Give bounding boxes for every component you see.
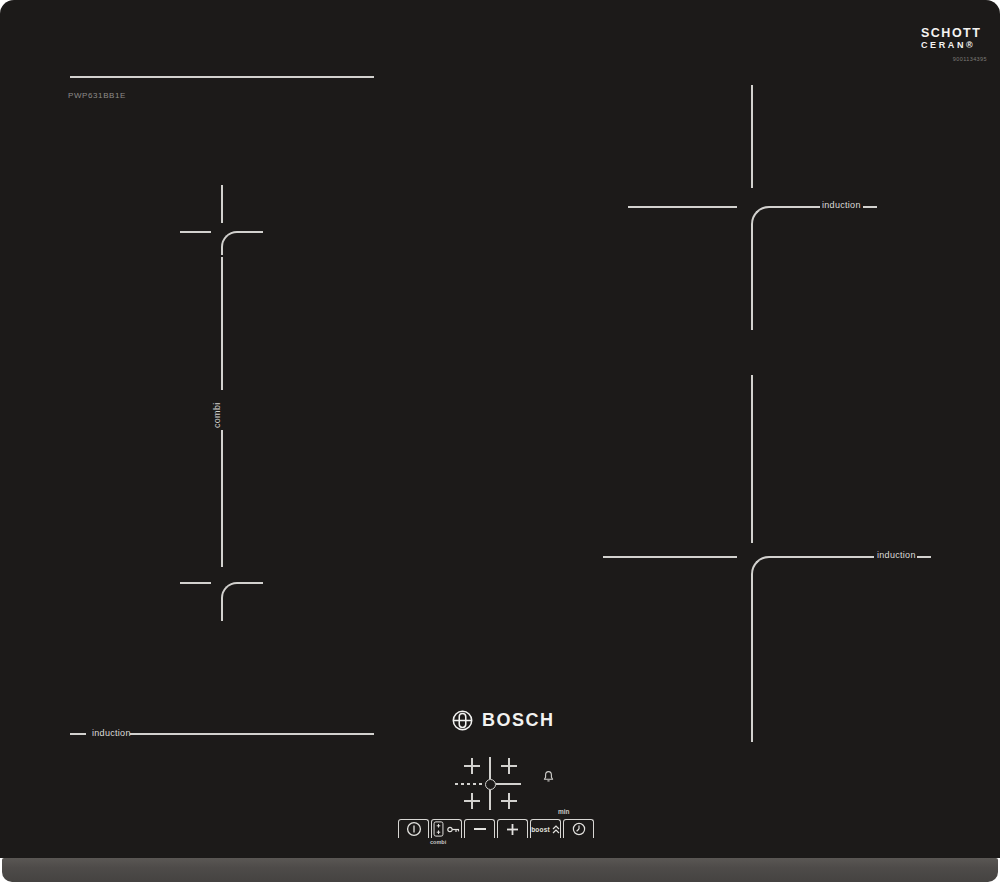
marking-line <box>221 606 223 621</box>
marking-line <box>180 582 211 584</box>
marking-line <box>489 757 491 779</box>
zone-corner-marking <box>751 556 874 586</box>
timer-clock-icon <box>572 822 586 836</box>
marking-line <box>603 556 737 558</box>
zone-corner-marking <box>221 582 263 606</box>
model-number: PWP631BB1E <box>68 91 126 100</box>
zone-corner-marking <box>221 231 263 255</box>
plus-button <box>497 819 528 838</box>
combi-and-childlock-button <box>431 819 462 838</box>
front-trim-strip <box>2 858 998 882</box>
combi-link-dashed-line <box>455 783 484 785</box>
induction-label-top-right: induction <box>822 200 861 210</box>
marking-line <box>180 231 211 233</box>
induction-label-left: induction <box>92 728 131 738</box>
ceran-text: CERAN® <box>921 41 987 50</box>
selector-ring-icon <box>485 779 496 790</box>
marking-line <box>496 783 521 785</box>
marking-line <box>221 430 223 567</box>
marking-line <box>751 375 753 543</box>
minus-button <box>464 819 495 838</box>
touch-control-row: boost <box>398 819 594 838</box>
marking-line <box>508 793 510 809</box>
combi-zone-label: combi <box>212 392 222 428</box>
schott-text: SCHOTT <box>921 27 987 40</box>
minutes-label: min <box>558 808 570 815</box>
bell-icon <box>542 770 555 783</box>
key-lock-icon <box>447 825 460 834</box>
power-icon <box>406 821 422 837</box>
marking-line <box>489 790 491 810</box>
flex-zone-icon <box>433 821 444 837</box>
minus-icon <box>474 828 486 830</box>
marking-line <box>471 793 473 809</box>
boost-chevrons-icon <box>552 825 560 834</box>
combi-button-label: combi <box>430 839 446 845</box>
marking-line <box>751 85 753 188</box>
boost-button: boost <box>530 819 561 838</box>
marking-line <box>863 206 877 208</box>
induction-label-bottom-right: induction <box>877 550 916 560</box>
bosch-logo: BOSCH <box>451 709 555 732</box>
marking-line <box>70 733 86 735</box>
marking-line <box>471 758 473 774</box>
product-photo-induction-hob: SCHOTT CERAN® 9001134395 PWP631BB1E comb… <box>0 0 1000 887</box>
boost-label: boost <box>531 826 550 833</box>
marking-line <box>221 185 223 223</box>
marking-line <box>628 206 737 208</box>
marking-line <box>751 234 753 330</box>
timer-button <box>563 819 594 838</box>
marking-line <box>917 556 931 558</box>
schott-ceran-badge: SCHOTT CERAN® 9001134395 <box>921 27 987 62</box>
bosch-armature-icon <box>451 709 474 732</box>
marking-line <box>751 586 753 742</box>
marking-line <box>508 758 510 774</box>
bosch-wordmark: BOSCH <box>482 710 555 731</box>
power-button <box>398 819 429 838</box>
serial-number: 9001134395 <box>921 57 987 63</box>
flex-zone-bottom-boundary-line <box>130 733 374 735</box>
flex-zone-top-boundary-line <box>70 76 374 78</box>
marking-line <box>221 257 223 390</box>
zone-corner-marking <box>751 206 820 234</box>
plus-icon <box>506 823 519 836</box>
